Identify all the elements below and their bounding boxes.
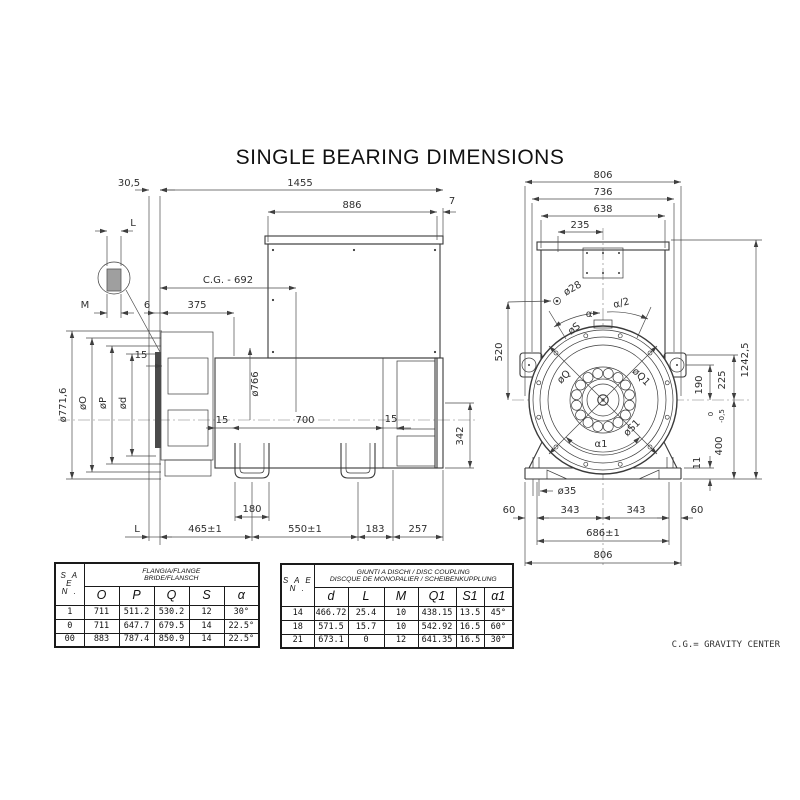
dim-183-label: 183 [365,524,384,535]
dim-520-label: 520 [494,342,505,361]
disc-coupling-edge [155,352,161,448]
flange-table-title-row: S A E N . FLANGIA/FLANGE BRIDE/FLANSCH [55,563,259,586]
gusset-right [639,470,659,479]
angle-alpha1-label: α1 [595,439,608,450]
flange-table: S A E N . FLANGIA/FLANGE BRIDE/FLANSCH O… [54,562,260,648]
dia-o-label: øO [78,396,89,410]
col-S1: S1 [456,587,484,606]
dim-343-left-label: 343 [560,505,579,516]
dia-771-6-label: ø771,6 [58,388,69,423]
dim-400-tol-upper: 0 [707,412,715,416]
dim-806-top-label: 806 [593,170,612,181]
coupling-table-title-row: S A E N . GIUNTI A DISCHI / DISC COUPLIN… [281,564,513,587]
col-L: L [348,587,384,606]
dia-d-label: ød [118,397,129,409]
col-M: M [384,587,418,606]
angle-alpha-label: α [586,309,593,320]
flange-sae-header: S A E N . [55,563,84,605]
col-alpha: α [224,586,259,605]
side-view-dimensions: 30,5 1455 886 7 C.G. - 692 L [58,178,474,541]
dim-806-bottom-label: 806 [593,550,612,561]
col-d: d [314,587,348,606]
drawing-sheet: SINGLE BEARING DIMENSIONS [0,0,800,800]
dim-1242-5-label: 1242,5 [740,343,751,378]
angle-alpha-half-label: α/2 [612,296,631,311]
dia-35-label: ø35 [558,486,577,497]
dim-15-right-label: 15 [385,414,398,425]
coupling-table: S A E N . GIUNTI A DISCHI / DISC COUPLIN… [280,563,514,649]
col-S: S [189,586,224,605]
dia-p-label: øP [98,397,109,409]
dim-736-label: 736 [593,187,612,198]
dim-235-label: 235 [570,220,589,231]
dim-343-right-label: 343 [626,505,645,516]
dim-60-left-label: 60 [503,505,516,516]
gusset-left [547,470,567,479]
dim-15-left-label: 15 [216,415,229,426]
front-view: 806 736 638 235 ø28 α α/2 øS 520 [494,170,762,566]
dim-11-label: 11 [692,457,703,470]
dim-l-label: L [134,524,140,535]
gravity-center-note: C.G.= GRAVITY CENTER [630,640,780,650]
table-row: 1711 511.2530.2 1230° [55,605,259,619]
dim-1455-label: 1455 [287,178,312,189]
dia-766-label: ø766 [250,371,261,396]
dim-700-label: 700 [295,415,314,426]
dim-400-tol-lower: -0,5 [718,409,726,423]
technical-drawing-canvas: 30,5 1455 886 7 C.G. - 692 L [0,0,800,800]
col-alpha1: α1 [484,587,513,606]
table-row: 0711 647.7679.5 1422.5° [55,619,259,633]
col-O: O [84,586,119,605]
key-section [107,269,121,291]
dim-6-label: 6 [144,300,150,311]
dim-375-label: 375 [187,300,206,311]
dim-7-label: 7 [449,196,455,207]
dim-886-label: 886 [342,200,361,211]
dia-28-label: ø28 [562,279,584,298]
col-Q: Q [154,586,189,605]
flange-table-columns: O P Q S α [55,586,259,605]
dim-60-right-label: 60 [691,505,704,516]
coupling-table-title: GIUNTI A DISCHI / DISC COUPLING DISCQUE … [314,564,513,587]
dim-550-label: 550±1 [288,524,322,535]
col-Q1: Q1 [418,587,456,606]
dim-15-disc-label: 15 [135,350,148,361]
dim-257-label: 257 [408,524,427,535]
detail-m-label: M [81,300,90,311]
table-row: 14466.72 25.410 438.1513.5 45° [281,606,513,620]
coupling-table-columns: d L M Q1 S1 α1 [281,587,513,606]
detail-l-label: L [130,218,136,229]
dim-400-label: 400 [714,436,725,455]
table-row: 18571.5 15.710 542.9216.5 60° [281,620,513,634]
side-view: 30,5 1455 886 7 C.G. - 692 L [58,178,478,545]
side-view-geometry [155,236,443,478]
dim-190-label: 190 [694,375,705,394]
dim-686-label: 686±1 [586,528,620,539]
dim-342-label: 342 [455,426,466,445]
table-row: 00883 787.4850.9 1422.5° [55,633,259,647]
flange-table-title: FLANGIA/FLANGE BRIDE/FLANSCH [84,563,259,586]
dim-638-label: 638 [593,204,612,215]
dim-225-label: 225 [717,370,728,389]
dim-30-5-label: 30,5 [118,178,140,189]
col-P: P [119,586,154,605]
coupling-sae-header: S A E N . [281,564,314,606]
dim-cg-label: C.G. - 692 [203,275,253,286]
table-row: 21673.1 012 641.3516.5 30° [281,634,513,648]
dim-465-label: 465±1 [188,524,222,535]
